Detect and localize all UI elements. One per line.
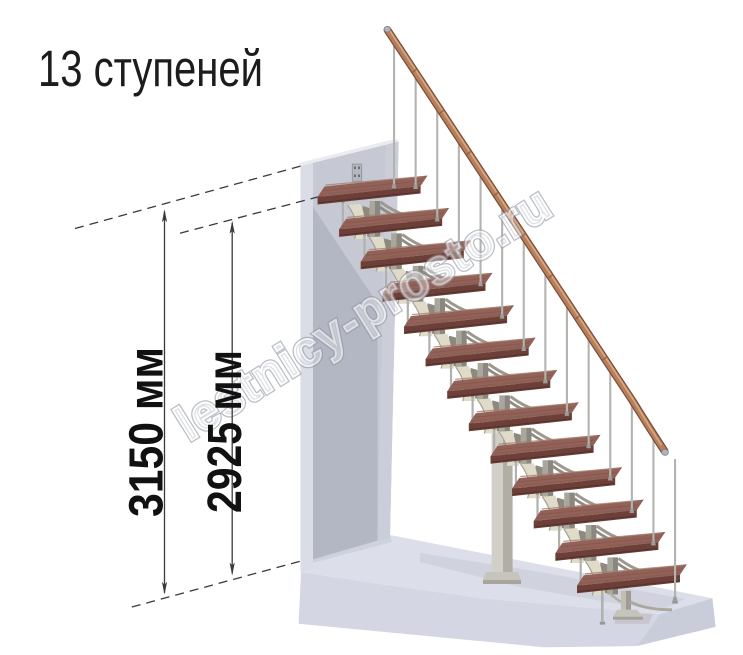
svg-text:3150 мм: 3150 мм xyxy=(121,347,174,517)
svg-text:13 ступеней: 13 ступеней xyxy=(38,40,263,97)
svg-text:2925 мм: 2925 мм xyxy=(199,350,252,513)
